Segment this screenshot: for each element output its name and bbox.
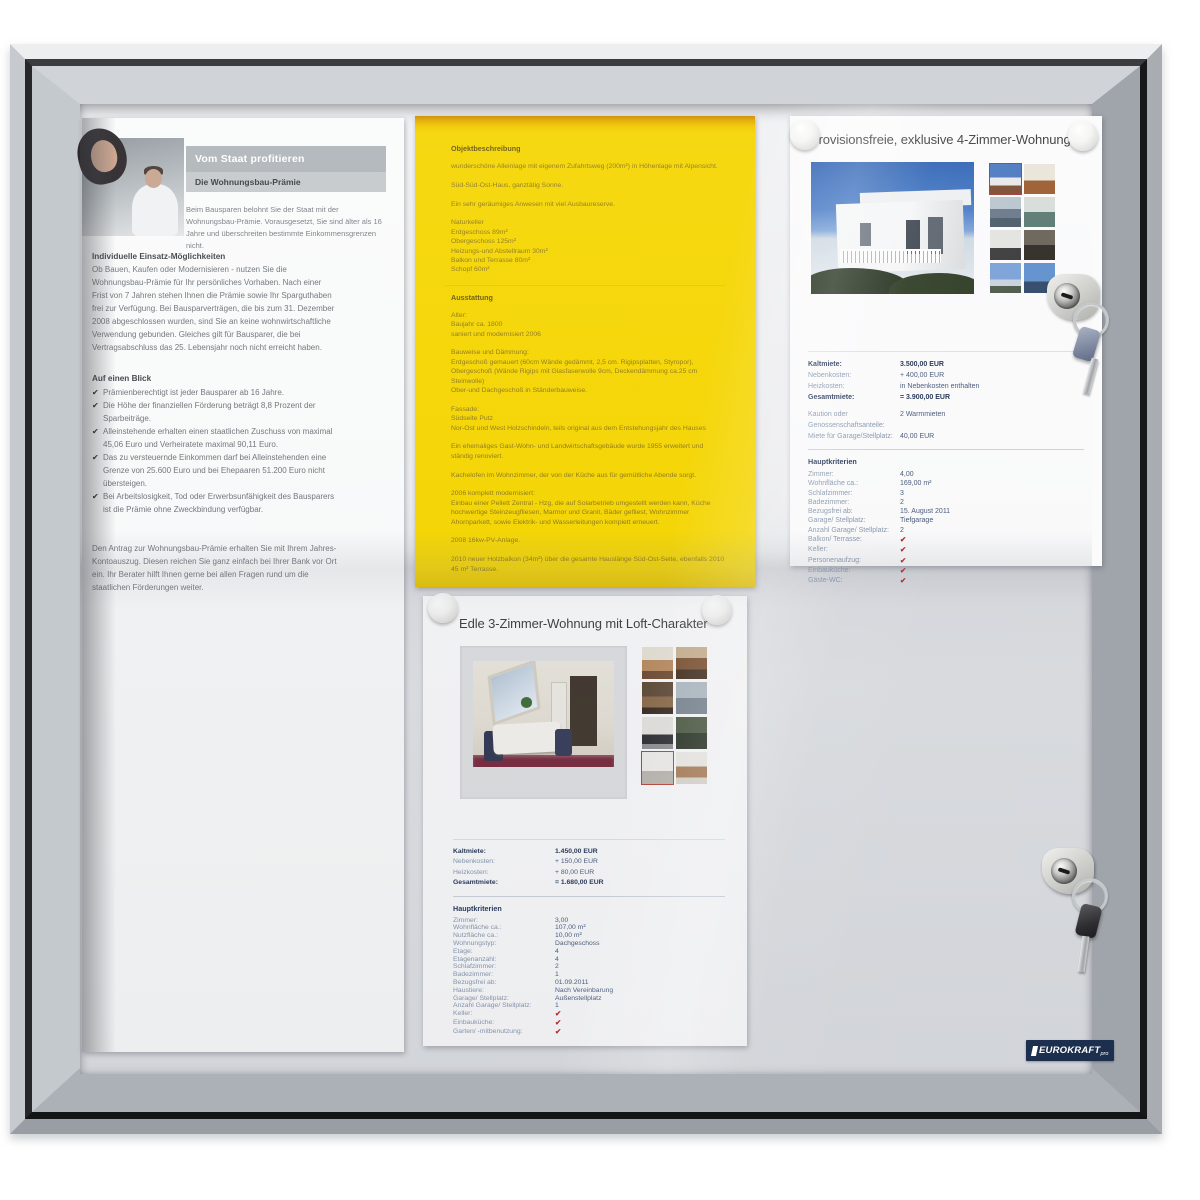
- text-line: Nor-Ost und West Holzschindeln, teils or…: [451, 424, 725, 433]
- row-value: 3,00: [555, 917, 568, 925]
- deposit-table: Kaution oder Genossenschaftsanteile: 2 W…: [808, 409, 1084, 442]
- lock-cylinder-icon: [1051, 858, 1077, 884]
- flyer-subtitle: Die Wohnungsbau-Prämie: [186, 172, 386, 192]
- divider: [445, 285, 725, 286]
- row-label: Garage/ Stellplatz:: [453, 995, 555, 1003]
- row-label: Zimmer:: [808, 470, 900, 479]
- row-label: Etagenanzahl:: [453, 956, 555, 964]
- row-label: Miete für Garage/Stellplatz:: [808, 431, 900, 442]
- text-line: Alter:: [451, 311, 725, 320]
- thumbnail-photo: [990, 197, 1021, 227]
- divider: [453, 896, 725, 897]
- row-label: Gäste-WC:: [808, 576, 900, 586]
- text-line: Balkon und Terrasse 80m²: [451, 256, 725, 265]
- thumbnail-photo: [676, 752, 707, 784]
- bullet-item: ✔ Alleinstehende erhalten einen staatlic…: [92, 425, 343, 451]
- row-label: Keller:: [453, 1010, 555, 1019]
- row-label: Nutzfläche ca.:: [453, 932, 555, 940]
- section-heading: Auf einen Blick: [92, 372, 374, 385]
- thumbnail-photo: [642, 717, 673, 749]
- table-row: Personenaufzug:: [808, 556, 1084, 566]
- row-label: Schlafzimmer:: [808, 489, 900, 498]
- text-line: [451, 339, 725, 348]
- table-row: Anzahl Garage/ Stellplatz: 1: [453, 1002, 725, 1010]
- table-row: Keller:: [808, 545, 1084, 555]
- row-value: 10,00 m²: [555, 932, 582, 940]
- row-label: Einbauküche:: [453, 1019, 555, 1028]
- text-line: Baujahr ca. 1800: [451, 320, 725, 329]
- text-line: [451, 190, 725, 199]
- text-line: Obergeschoss 125m²: [451, 237, 725, 246]
- table-row: Wohnungstyp: Dachgeschoss: [453, 940, 725, 948]
- bullet-list: ✔ Prämienberechtigt ist jeder Bausparer …: [92, 386, 374, 516]
- text-line: [451, 395, 725, 404]
- row-value: [900, 545, 906, 555]
- listing-4-zimmer: Provisionsfreie, exklusive 4-Zimmer-Wohn…: [790, 116, 1102, 566]
- thumbnail-photo: [1024, 197, 1055, 227]
- thumbnail-photo: [990, 230, 1021, 260]
- table-row: Zimmer: 4,00: [808, 470, 1084, 479]
- text-line: [451, 527, 725, 536]
- row-label: Garage/ Stellplatz:: [808, 516, 900, 525]
- thumbnail-photo: [990, 164, 1021, 194]
- row-label: Badezimmer:: [808, 498, 900, 507]
- row-value: = 1.680,00 EUR: [555, 878, 604, 888]
- row-value: 3: [900, 489, 904, 498]
- thumbnail-photo: [676, 647, 707, 679]
- magnet: [428, 593, 458, 623]
- divider: [808, 449, 1084, 450]
- text-line: Bauweise und Dämmung:: [451, 348, 725, 357]
- bullet-text: Das zu versteuernde Einkommen darf bei A…: [103, 453, 326, 488]
- table-row: Gesamtmiete: = 3.900,00 EUR: [808, 392, 1084, 403]
- listing-title: Edle 3-Zimmer-Wohnung mit Loft-Charakter: [459, 616, 708, 631]
- house-photo: [811, 162, 974, 294]
- bushes: [889, 273, 974, 294]
- row-label: Haustiere:: [453, 987, 555, 995]
- text-line: Heizungs-und Abstellraum 30m²: [451, 247, 725, 256]
- row-value: 1: [555, 971, 559, 979]
- lock-cylinder-icon: [1054, 283, 1080, 309]
- person-head: [145, 169, 162, 188]
- row-label: Anzahl Garage/ Stellplatz:: [808, 526, 900, 535]
- person-shirt: [132, 184, 178, 236]
- flyer-title: Vom Staat profitieren: [186, 146, 386, 172]
- text-line: 2006 komplett modernisiert:: [451, 489, 725, 498]
- row-label: Wohnfläche ca.:: [808, 479, 900, 488]
- row-value: = 3.900,00 EUR: [900, 392, 950, 403]
- flyer-body: Individuelle Einsatz-Möglichkeiten Ob Ba…: [92, 250, 374, 594]
- row-value: Außenstellplatz: [555, 995, 601, 1003]
- table-row: Wohnfläche ca.: 169,00 m²: [808, 479, 1084, 488]
- thumbnail-photo: [676, 717, 707, 749]
- bullet-item: ✔ Das zu versteuernde Einkommen darf bei…: [92, 451, 343, 490]
- bullet-text: Bei Arbeitslosigkeit, Tod oder Erwerbsun…: [103, 492, 334, 514]
- row-label: Anzahl Garage/ Stellplatz:: [453, 1002, 555, 1010]
- bullet-item: ✔ Bei Arbeitslosigkeit, Tod oder Erwerbs…: [92, 490, 343, 516]
- thumbnail-grid: [642, 647, 707, 784]
- row-label: Bezugsfrei ab:: [808, 507, 900, 516]
- eurokraft-flag-icon: [1031, 1046, 1038, 1056]
- row-value: 2: [900, 526, 904, 535]
- text-line: [451, 546, 725, 555]
- row-label: Gesamtmiete:: [808, 392, 900, 403]
- row-value: [900, 566, 906, 576]
- row-label: Balkon/ Terrasse:: [808, 535, 900, 545]
- row-value: + 80,00 EUR: [555, 868, 594, 878]
- table-row: Garten/ -mitbenutzung:: [453, 1028, 725, 1037]
- table-row: Schlafzimmer: 3: [808, 489, 1084, 498]
- frame-shadow-overlay: [82, 118, 116, 1052]
- text-line: Schopf 60m²: [451, 265, 725, 274]
- table-row: Heizkosten: + 80,00 EUR: [453, 868, 725, 878]
- flyer-header-bar: Vom Staat profitieren Die Wohnungsbau-Pr…: [186, 146, 386, 192]
- flyer-objektbeschreibung: Objektbeschreibung wunderschöne Alleinla…: [415, 116, 755, 587]
- divider: [808, 351, 1084, 352]
- table-row: Schlafzimmer: 2: [453, 963, 725, 971]
- table-row: Garage/ Stellplatz: Außenstellplatz: [453, 995, 725, 1003]
- row-value: 4: [555, 956, 559, 964]
- notice-board: Vom Staat profitieren Die Wohnungsbau-Pr…: [10, 44, 1162, 1134]
- table-row: Zimmer: 3,00: [453, 917, 725, 925]
- row-label: Bezugsfrei ab:: [453, 979, 555, 987]
- section-text: Den Antrag zur Wohnungsbau-Prämie erhalt…: [92, 542, 338, 594]
- magnet: [790, 120, 820, 150]
- text-line: Obergeschoß (Wände Rigips mit Glasfaserw…: [451, 367, 725, 386]
- table-row: Badezimmer: 2: [808, 498, 1084, 507]
- text-line: wunderschöne Alleinlage mit eigenem Zufa…: [451, 162, 725, 171]
- row-label: Badezimmer:: [453, 971, 555, 979]
- thumbnail-photo: [1024, 230, 1055, 260]
- row-value: 107,00 m²: [555, 924, 586, 932]
- row-value: 2: [555, 963, 559, 971]
- balcony-railing: [840, 249, 941, 263]
- table-row: Gesamtmiete: = 1.680,00 EUR: [453, 878, 725, 888]
- row-label: Personenaufzug:: [808, 556, 900, 566]
- text-line: [451, 433, 725, 442]
- row-label: Zimmer:: [453, 917, 555, 925]
- text-line: 2010 neuer Holzbalkon (34m²) über die ge…: [451, 555, 725, 574]
- table-row: Kaution oder Genossenschaftsanteile: 2 W…: [808, 409, 1084, 431]
- text-line: Ein ehemaliges Gast-Wohn- und Landwirtsc…: [451, 442, 725, 461]
- text-line: Südseite Putz: [451, 414, 725, 423]
- table-row: Haustiere: Nach Vereinbarung: [453, 987, 725, 995]
- row-label: Kaution oder Genossenschaftsanteile:: [808, 409, 900, 431]
- plant: [521, 697, 532, 708]
- thumbnail-photo: [676, 682, 707, 714]
- bullet-text: Alleinstehende erhalten einen staatliche…: [103, 427, 332, 449]
- row-label: Nebenkosten:: [808, 370, 900, 381]
- magnet: [702, 595, 732, 625]
- description-lines: wunderschöne Alleinlage mit eigenem Zufa…: [451, 162, 725, 275]
- thumbnail-photo: [642, 752, 673, 784]
- criteria-table: Zimmer: 4,00 Wohnfläche ca.: 169,00 m² S…: [808, 470, 1084, 587]
- criteria-heading: Hauptkriterien: [808, 457, 1084, 466]
- table-row: Einbauküche:: [453, 1019, 725, 1028]
- row-label: Gesamtmiete:: [453, 878, 555, 888]
- section-text: Ob Bauen, Kaufen oder Modernisieren - nu…: [92, 263, 338, 354]
- feature-lines: Alter:Baujahr ca. 1800saniert und modern…: [451, 311, 725, 574]
- house-window: [860, 223, 871, 247]
- thumbnail-photo: [990, 263, 1021, 293]
- row-value: + 150,00 EUR: [555, 857, 598, 867]
- row-label: Keller:: [808, 545, 900, 555]
- row-label: Heizkosten:: [453, 868, 555, 878]
- rent-table: Kaltmiete: 1.450,00 EUR Nebenkosten: + 1…: [453, 847, 725, 889]
- section-heading: Objektbeschreibung: [451, 144, 725, 153]
- text-line: Kachelofen im Wohnzimmer, der von der Kü…: [451, 471, 725, 480]
- dining-table: [492, 721, 561, 754]
- row-label: Nebenkosten:: [453, 857, 555, 867]
- row-value: in Nebenkosten enthalten: [900, 381, 979, 392]
- row-label: Etage:: [453, 948, 555, 956]
- bullet-text: Prämienberechtigt ist jeder Bausparer ab…: [103, 388, 284, 397]
- row-label: Wohnfläche ca.:: [453, 924, 555, 932]
- row-value: Dachgeschoss: [555, 940, 600, 948]
- table-row: Etagenanzahl: 4: [453, 956, 725, 964]
- listing-title: Provisionsfreie, exklusive 4-Zimmer-Wohn…: [810, 132, 1071, 147]
- text-line: Einbau einer Pellett Zentral - Hzg, die …: [451, 499, 725, 527]
- table-row: Kaltmiete: 1.450,00 EUR: [453, 847, 725, 857]
- row-label: Wohnungstyp:: [453, 940, 555, 948]
- thumbnail-photo: [1024, 164, 1055, 194]
- table-row: Miete für Garage/Stellplatz: 40,00 EUR: [808, 431, 1084, 442]
- row-value: + 400,00 EUR: [900, 370, 944, 381]
- table-row: Nebenkosten: + 400,00 EUR: [808, 370, 1084, 381]
- table-row: Heizkosten: in Nebenkosten enthalten: [808, 381, 1084, 392]
- keyhole-icon: [1058, 867, 1071, 875]
- table-row: Wohnfläche ca.: 107,00 m²: [453, 924, 725, 932]
- thumbnail-grid: [990, 164, 1055, 293]
- row-value: [900, 556, 906, 566]
- table-row: Gäste-WC:: [808, 576, 1084, 586]
- table-row: Nutzfläche ca.: 10,00 m²: [453, 932, 725, 940]
- row-value: 2: [900, 498, 904, 507]
- row-value: 3.500,00 EUR: [900, 359, 944, 370]
- chair: [555, 729, 572, 757]
- thumbnail-photo: [642, 647, 673, 679]
- text-line: [451, 209, 725, 218]
- table-row: Einbauküche:: [808, 566, 1084, 576]
- row-value: 4,00: [900, 470, 914, 479]
- flyer-intro-text: Beim Bausparen belohnt Sie der Staat mit…: [186, 204, 386, 252]
- bullet-text: Die Höhe der finanziellen Förderung betr…: [103, 401, 316, 423]
- wardrobe: [570, 676, 597, 746]
- row-label: Schlafzimmer:: [453, 963, 555, 971]
- row-value: 4: [555, 948, 559, 956]
- row-value: Nach Vereinbarung: [555, 987, 613, 995]
- table-row: Garage/ Stellplatz: Tiefgarage: [808, 516, 1084, 525]
- table-row: Badezimmer: 1: [453, 971, 725, 979]
- text-line: Ober-und Dachgeschoß in Ständerbauweise.: [451, 386, 725, 395]
- listing-3-zimmer: Edle 3-Zimmer-Wohnung mit Loft-Charakter: [423, 596, 747, 1046]
- table-row: Etage: 4: [453, 948, 725, 956]
- eurokraft-logo: EUROKRAFT pro: [1026, 1040, 1114, 1061]
- table-row: Kaltmiete: 3.500,00 EUR: [808, 359, 1084, 370]
- row-value: [900, 576, 906, 586]
- flyer-wohnungsbau-praemie: Vom Staat profitieren Die Wohnungsbau-Pr…: [82, 118, 404, 1052]
- row-value: 15. August 2011: [900, 507, 950, 516]
- criteria-heading: Hauptkriterien: [453, 904, 725, 913]
- text-line: [451, 171, 725, 180]
- table-row: Bezugsfrei ab: 15. August 2011: [808, 507, 1084, 516]
- magnet: [1068, 121, 1098, 151]
- row-label: Kaltmiete:: [453, 847, 555, 857]
- text-line: 2008 16kw-PV-Anlage.: [451, 536, 725, 545]
- listing-details: Kaltmiete: 3.500,00 EUR Nebenkosten: + 4…: [808, 344, 1084, 587]
- row-label: Garten/ -mitbenutzung:: [453, 1028, 555, 1037]
- table-row: Anzahl Garage/ Stellplatz: 2: [808, 526, 1084, 535]
- row-value: [900, 535, 906, 545]
- section-heading: Ausstattung: [451, 293, 725, 302]
- text-line: [451, 461, 725, 470]
- table-row: Nebenkosten: + 150,00 EUR: [453, 857, 725, 867]
- text-line: Fassade:: [451, 405, 725, 414]
- row-value: 01.09.2011: [555, 979, 589, 987]
- row-value: Tiefgarage: [900, 516, 933, 525]
- table-row: Balkon/ Terrasse:: [808, 535, 1084, 545]
- row-label: Kaltmiete:: [808, 359, 900, 370]
- text-line: Süd-Süd-Ost-Haus, ganztätig Sonne.: [451, 181, 725, 190]
- text-line: Erdgeschoss 89m²: [451, 228, 725, 237]
- row-label: Einbauküche:: [808, 566, 900, 576]
- row-value: [555, 1028, 561, 1037]
- skylight-window: [487, 661, 540, 726]
- listing-details: Kaltmiete: 1.450,00 EUR Nebenkosten: + 1…: [453, 832, 725, 1037]
- brand-suffix: pro: [1100, 1051, 1108, 1057]
- text-line: saniert und modernisiert 2006: [451, 330, 725, 339]
- loft-photo: [473, 661, 614, 767]
- text-line: Ein sehr geräumiges Anwesen mit viel Aus…: [451, 200, 725, 209]
- rent-table: Kaltmiete: 3.500,00 EUR Nebenkosten: + 4…: [808, 359, 1084, 403]
- divider: [453, 839, 725, 840]
- keyhole-icon: [1061, 292, 1074, 300]
- glass-pane: Vom Staat profitieren Die Wohnungsbau-Pr…: [80, 104, 1092, 1074]
- text-line: Naturkeller: [451, 218, 725, 227]
- row-value: 169,00 m²: [900, 479, 932, 488]
- row-value: 1.450,00 EUR: [555, 847, 598, 857]
- text-line: Erdgeschoß gemauert (60cm Wände gedämmt,…: [451, 358, 725, 367]
- table-row: Bezugsfrei ab: 01.09.2011: [453, 979, 725, 987]
- criteria-table: Zimmer: 3,00 Wohnfläche ca.: 107,00 m² N…: [453, 917, 725, 1037]
- table-row: Keller:: [453, 1010, 725, 1019]
- bullet-item: ✔ Prämienberechtigt ist jeder Bausparer …: [92, 386, 343, 399]
- thumbnail-photo: [642, 682, 673, 714]
- bullet-item: ✔ Die Höhe der finanziellen Förderung be…: [92, 399, 343, 425]
- text-line: [451, 480, 725, 489]
- row-label: Heizkosten:: [808, 381, 900, 392]
- brand-name: EUROKRAFT: [1039, 1045, 1100, 1056]
- row-value: 40,00 EUR: [900, 431, 934, 442]
- row-value: 2 Warmmieten: [900, 409, 945, 431]
- photo-matte: [460, 646, 627, 799]
